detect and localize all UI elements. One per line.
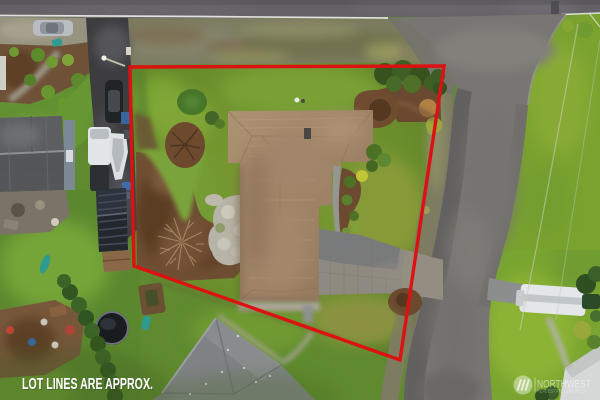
svg-text:LOT LINES ARE APPROX.: LOT LINES ARE APPROX. bbox=[22, 376, 153, 393]
svg-text:REAL ESTATE GROUP LLC: REAL ESTATE GROUP LLC bbox=[537, 389, 587, 394]
